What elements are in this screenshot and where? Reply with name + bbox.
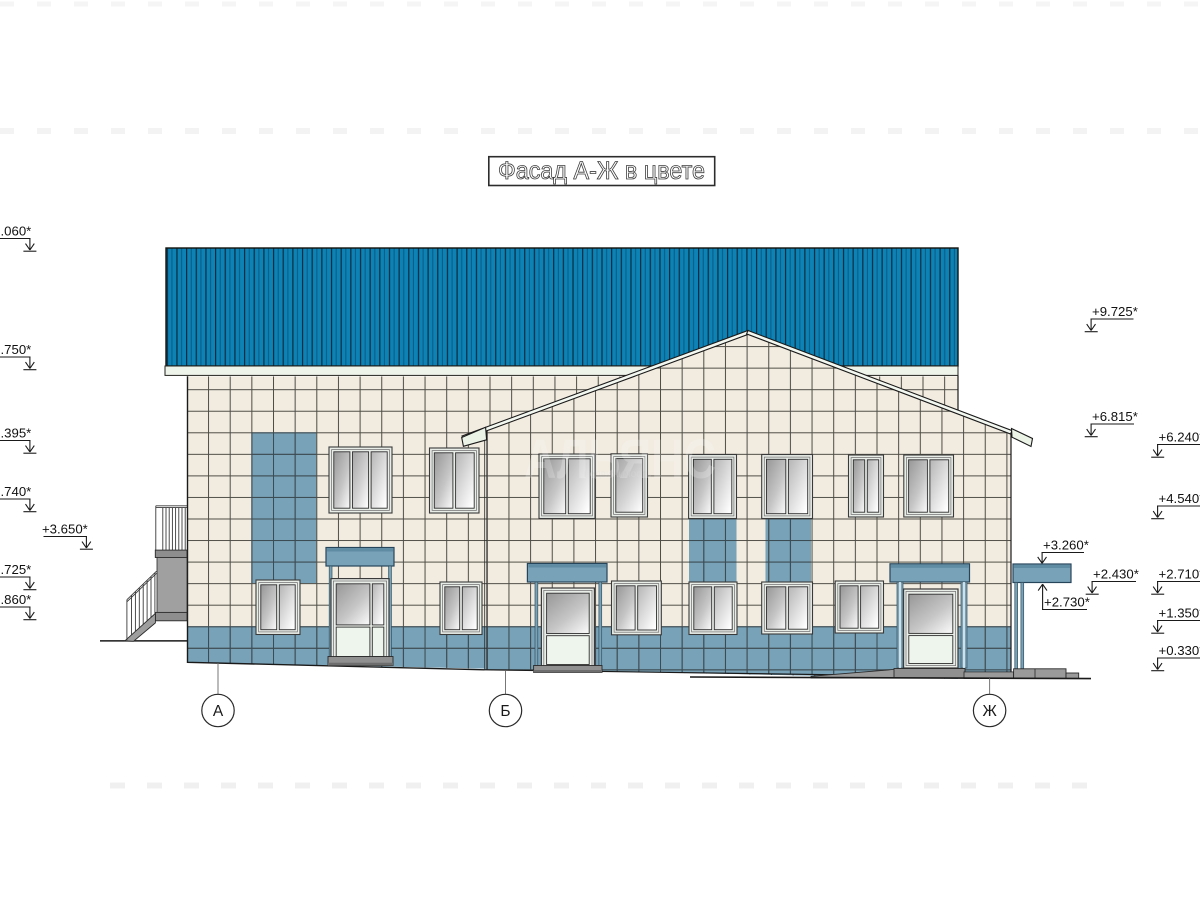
svg-text:+9.725*: +9.725* xyxy=(1092,304,1138,319)
svg-text:+1.350*: +1.350* xyxy=(1159,605,1200,620)
svg-text:+2.725*: +2.725* xyxy=(0,562,31,577)
svg-text:+7.395*: +7.395* xyxy=(0,425,31,440)
svg-text:+6.240*: +6.240* xyxy=(1159,429,1200,444)
svg-text:+11.060*: +11.060* xyxy=(0,223,31,238)
svg-text:+1.860*: +1.860* xyxy=(0,592,31,607)
svg-text:+9.750*: +9.750* xyxy=(0,342,31,357)
svg-text:Ж: Ж xyxy=(982,703,997,720)
svg-text:+4.540*: +4.540* xyxy=(1159,491,1200,506)
svg-text:АЛЬЯНС: АЛЬЯНС xyxy=(524,427,716,490)
svg-text:Фасад А-Ж в цвете: Фасад А-Ж в цвете xyxy=(498,157,705,185)
svg-text:+0.330*: +0.330* xyxy=(1159,643,1200,658)
svg-text:+6.815*: +6.815* xyxy=(1092,409,1138,424)
svg-text:+3.260*: +3.260* xyxy=(1043,537,1089,552)
svg-text:+5.740*: +5.740* xyxy=(0,484,31,499)
svg-text:недвижимость: недвижимость xyxy=(584,469,651,480)
svg-text:+2.430*: +2.430* xyxy=(1093,566,1139,581)
svg-text:+2.730*: +2.730* xyxy=(1044,594,1090,609)
svg-text:+2.710*: +2.710* xyxy=(1159,566,1200,581)
svg-text:А: А xyxy=(213,703,224,720)
svg-text:Б: Б xyxy=(500,703,510,720)
svg-text:+3.650*: +3.650* xyxy=(42,521,88,536)
